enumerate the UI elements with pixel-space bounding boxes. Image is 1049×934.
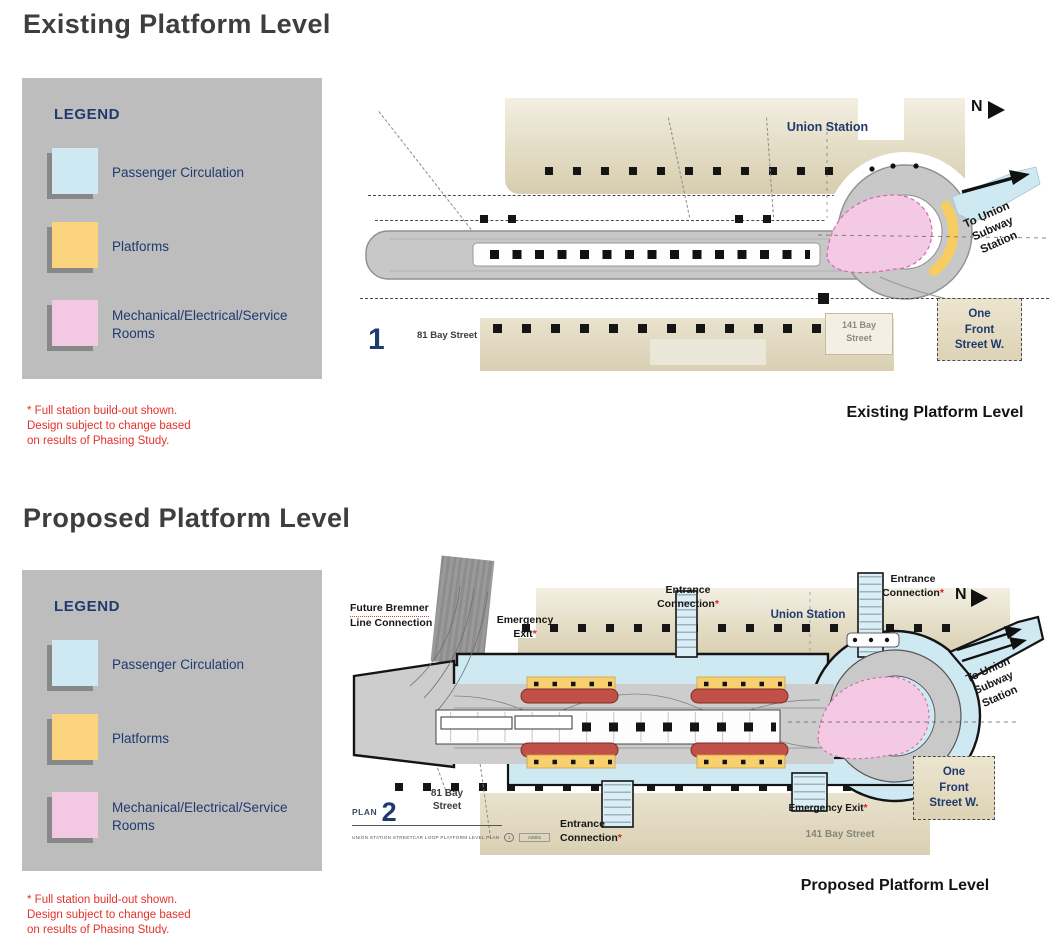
entrance-connection-top-label: Entrance Connection*: [652, 584, 724, 611]
legend-label-platforms: Platforms: [112, 730, 312, 748]
proposed-plan-drawing: One Front Street W. Future Bremner Line …: [350, 558, 1049, 876]
column-square: [818, 293, 829, 304]
streetcar-outline: [441, 717, 512, 729]
legend-title: LEGEND: [54, 598, 120, 615]
report-page: Existing Platform Level LEGEND Passenger…: [0, 0, 1049, 934]
existing-plan-caption: Existing Platform Level: [815, 404, 1049, 422]
legend-label-mech-service: Mechanical/Electrical/Service Rooms: [112, 799, 312, 834]
entrance-connection-bottom-label: Entrance Connection*: [560, 818, 644, 845]
legend-label-platforms: Platforms: [112, 238, 312, 256]
legend-label-mech-service: Mechanical/Electrical/Service Rooms: [112, 307, 312, 342]
legend-swatch-passenger-circulation: [52, 148, 98, 194]
plan-number-existing: 1: [368, 323, 385, 357]
emergency-exit-bottom-label: Emergency Exit*: [778, 802, 878, 815]
north-label: N: [955, 586, 967, 604]
one-front-street-box: One Front Street W.: [937, 298, 1022, 361]
union-station-label: Union Station: [763, 608, 853, 623]
legend-swatch-platforms: [52, 222, 98, 268]
column-row-building-bottom: [493, 324, 873, 333]
loop-column-dot: [869, 638, 873, 642]
legend-panel-proposed: LEGEND Passenger Circulation Platforms M…: [22, 570, 322, 871]
plan-ref-bubble: 1: [504, 833, 515, 842]
loop-column-dot: [869, 166, 874, 171]
loop-column-dot: [890, 163, 895, 168]
entrance-connection-top-right-label: Entrance Connection*: [876, 573, 950, 600]
plan-title-block: PLAN 2 UNION STATION STREETCAR LOOP PLAT…: [352, 802, 527, 844]
streetcar-vehicle: [521, 689, 618, 703]
bay-81-label: 81 Bay Street: [417, 330, 477, 341]
legend-swatch-passenger-circulation: [52, 640, 98, 686]
union-station-label: Union Station: [765, 119, 890, 135]
bay-141-label: 141 Bay Street: [795, 828, 885, 841]
north-label: N: [971, 98, 983, 116]
legend-title: LEGEND: [54, 106, 120, 123]
legend-label-passenger-circulation: Passenger Circulation: [112, 656, 312, 674]
existing-section-title: Existing Platform Level: [23, 9, 331, 40]
loop-column-dot: [913, 163, 918, 168]
plan-ref-code: A2001: [519, 833, 550, 842]
loop-column-dot: [885, 638, 889, 642]
phasing-note-proposed: * Full station build-out shown. Design s…: [27, 893, 191, 934]
bay-141-label-box: 141 Bay Street: [825, 313, 893, 355]
existing-plan-drawing: 141 Bay Street One Front Street W. Union…: [360, 85, 1049, 430]
legend-label-passenger-circulation: Passenger Circulation: [112, 164, 312, 182]
north-arrow-icon: [988, 101, 1005, 119]
legend-swatch-mech-service: [52, 300, 98, 346]
building-inner-room: [650, 339, 766, 365]
phasing-note-existing: * Full station build-out shown. Design s…: [27, 404, 191, 450]
north-arrow-icon: [971, 589, 988, 607]
proposed-section-title: Proposed Platform Level: [23, 503, 350, 534]
legend-swatch-platforms: [52, 714, 98, 760]
streetcar-vehicle: [691, 689, 788, 703]
one-front-street-box: One Front Street W.: [913, 756, 995, 820]
legend-panel-existing: LEGEND Passenger Circulation Platforms M…: [22, 78, 322, 379]
legend-swatch-mech-service: [52, 792, 98, 838]
emergency-exit-top-label: Emergency Exit*: [492, 614, 558, 641]
future-bremner-label: Future Bremner Line Connection: [350, 602, 446, 630]
proposed-plan-caption: Proposed Platform Level: [770, 877, 1020, 895]
streetcar-outline: [515, 716, 572, 729]
loop-column-dot: [853, 638, 857, 642]
